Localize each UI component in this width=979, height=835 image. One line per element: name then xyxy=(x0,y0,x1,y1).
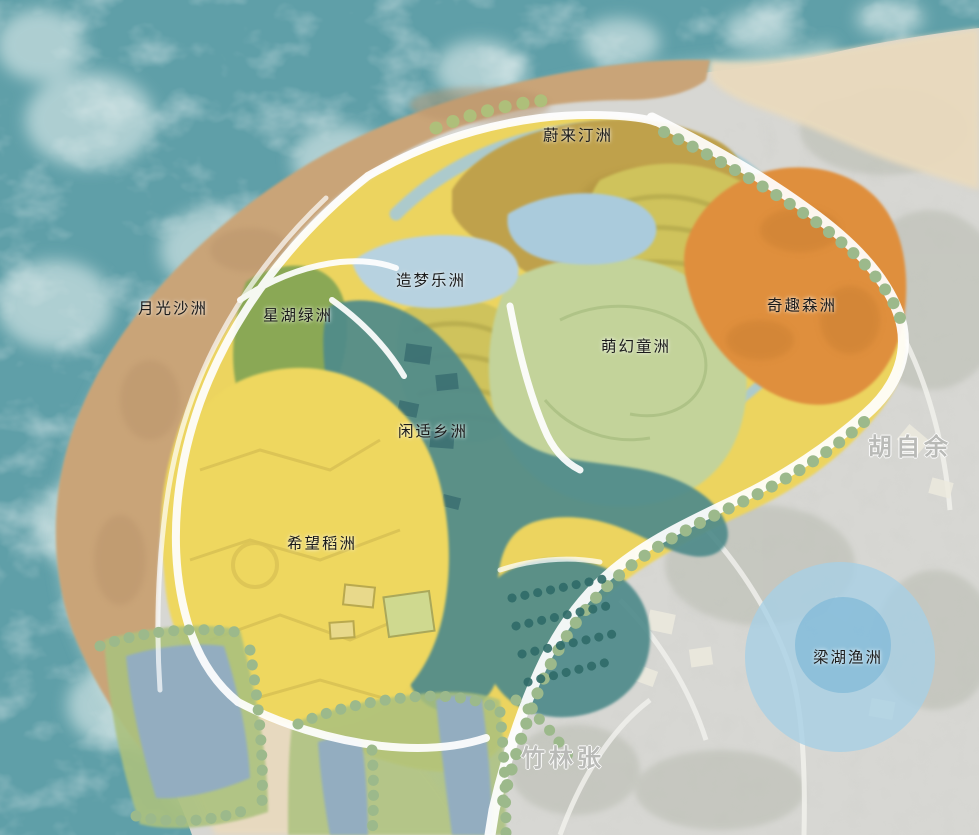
bg-label-hu-zi-yu: 胡自余 xyxy=(868,435,952,459)
bg-label-zhu-lin-zhang: 竹林张 xyxy=(521,746,605,770)
map-canvas xyxy=(0,0,979,835)
zone-lianghu-yuzhou xyxy=(745,562,935,752)
masterplan-map: 胡自余 竹林张 蔚来汀洲 月光沙洲 星湖绿洲 造梦乐洲 萌幻童洲 奇趣森洲 闲适… xyxy=(0,0,979,835)
